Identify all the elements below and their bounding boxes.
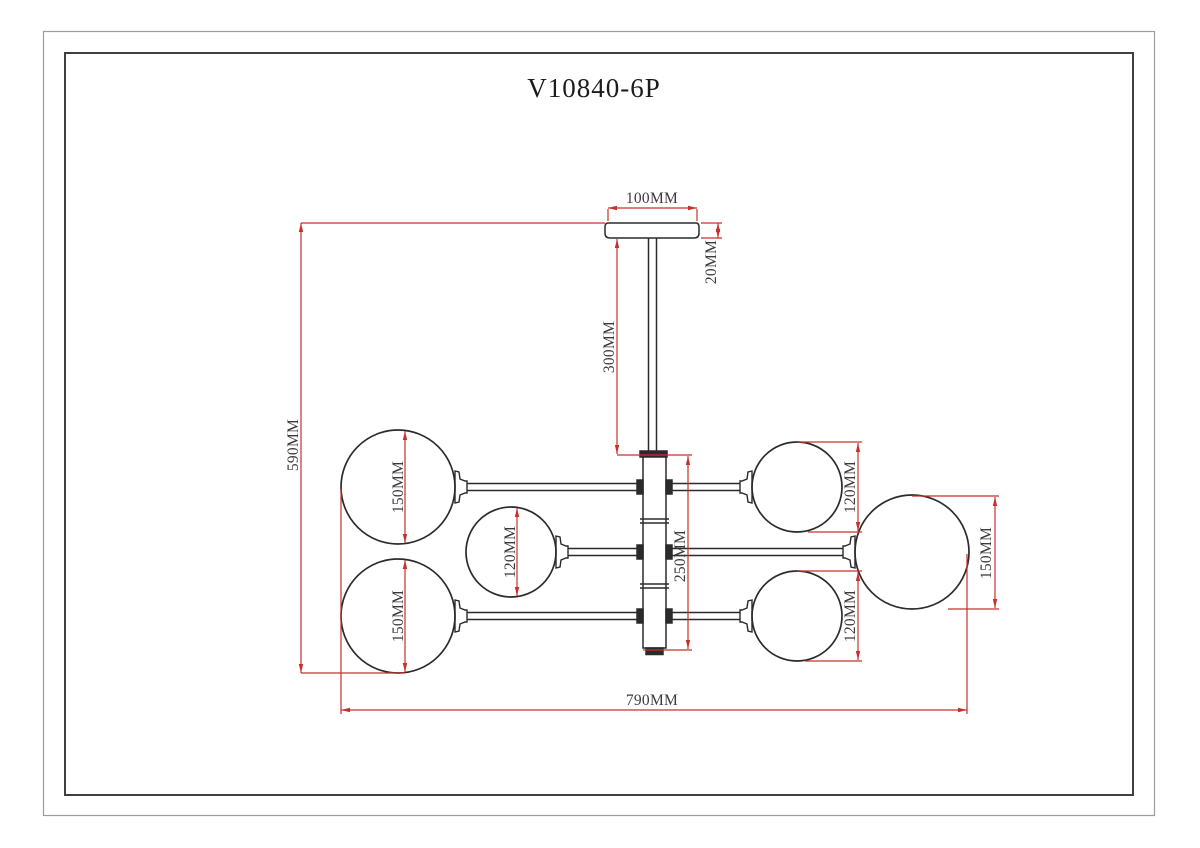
label-overall-height: 590MM bbox=[285, 419, 302, 471]
dim-canopy-width bbox=[608, 208, 697, 221]
label-canopy-height: 20MM bbox=[703, 240, 720, 284]
stem bbox=[640, 238, 667, 457]
socket-top-left bbox=[455, 471, 467, 503]
dim-overall-height bbox=[301, 223, 605, 673]
body-finial bbox=[646, 648, 663, 655]
technical-drawing-canvas: V10840-6P bbox=[0, 0, 1200, 848]
dim-canopy-height bbox=[701, 223, 722, 238]
label-canopy-width: 100MM bbox=[626, 190, 678, 207]
socket-middle-left bbox=[556, 536, 568, 568]
globe-bottom-right bbox=[752, 571, 842, 661]
label-globe-top-right: 120MM bbox=[842, 461, 859, 513]
arm-hub bbox=[666, 609, 672, 623]
label-stem-length: 300MM bbox=[601, 321, 618, 373]
arm-hub bbox=[666, 480, 672, 494]
globe-far-right bbox=[855, 495, 969, 609]
page-frame bbox=[44, 32, 1155, 816]
label-body-height: 250MM bbox=[672, 530, 689, 582]
label-globe-bottom-right: 120MM bbox=[842, 590, 859, 642]
arm-hub bbox=[637, 609, 643, 623]
body-column bbox=[643, 457, 666, 648]
inner-border bbox=[65, 53, 1133, 795]
label-globe-top-left: 150MM bbox=[390, 461, 407, 513]
drawing-title: V10840-6P bbox=[527, 73, 661, 103]
stem-flange bbox=[640, 451, 667, 457]
socket-bottom-right bbox=[740, 600, 752, 632]
dimension-labels: 100MM 20MM 300MM 250MM 590MM 790MM 150MM… bbox=[285, 190, 995, 709]
arm-hub bbox=[637, 545, 643, 559]
socket-top-right bbox=[740, 471, 752, 503]
label-globe-middle-left: 120MM bbox=[502, 526, 519, 578]
central-body bbox=[637, 457, 672, 655]
label-globe-far-right: 150MM bbox=[978, 527, 995, 579]
fixture-outline bbox=[341, 223, 969, 673]
label-overall-width: 790MM bbox=[626, 692, 678, 709]
socket-far-right bbox=[843, 536, 855, 568]
arm-hub bbox=[637, 480, 643, 494]
ceiling-canopy bbox=[605, 223, 699, 238]
outer-border bbox=[44, 32, 1155, 816]
socket-bottom-left bbox=[455, 600, 467, 632]
globe-top-right bbox=[752, 442, 842, 532]
label-globe-bottom-left: 150MM bbox=[390, 590, 407, 642]
